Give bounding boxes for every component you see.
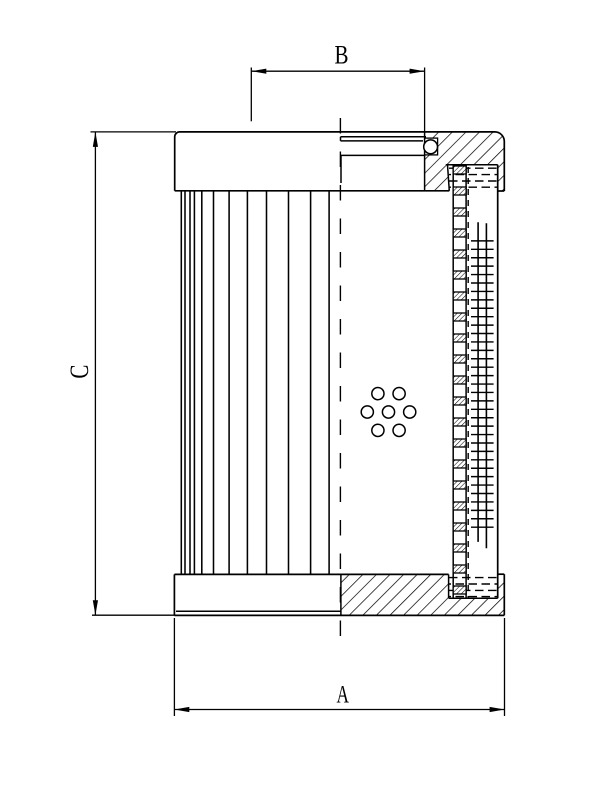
svg-text:C: C [65, 365, 94, 379]
svg-text:B: B [335, 41, 349, 70]
svg-text:A: A [336, 682, 349, 709]
